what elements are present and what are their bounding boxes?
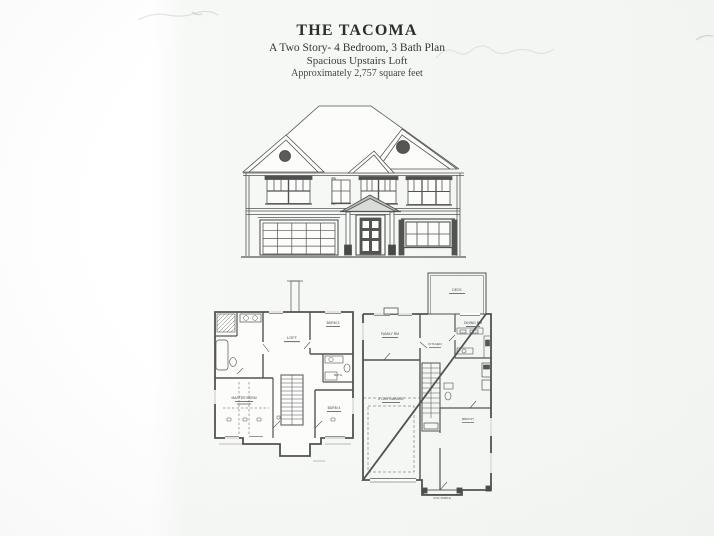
window-upper-right: [406, 177, 452, 206]
plan-area: Approximately 2,757 square feet: [0, 68, 714, 79]
room-label-kitchen: KITCHEN: [428, 342, 441, 346]
room-label-loft: LOFT: [287, 335, 298, 340]
scanned-flyer-page: THE TACOMA A Two Story- 4 Bedroom, 3 Bat…: [0, 0, 714, 536]
window-upper-center-small: [331, 178, 351, 204]
room-label-garage: 2 CAR GARAGE: [378, 397, 404, 401]
garage-door: [258, 218, 340, 256]
plan-title: THE TACOMA: [0, 22, 714, 40]
room-label-deck: DECK: [452, 288, 462, 292]
plan-tagline: Spacious Upstairs Loft: [0, 55, 714, 67]
room-label-master: MASTER BDRM: [231, 396, 256, 400]
room-label-bath: BATH: [334, 373, 342, 377]
room-label-brkfst: BRKFST: [462, 417, 474, 421]
room-label-porch: COV. PORCH: [433, 496, 450, 500]
window-lower-right: [399, 219, 457, 255]
first-floor-plan: DECK FAMILY RM DINING RM KITCHEN 2 CAR G…: [360, 268, 497, 500]
front-door: [356, 215, 385, 255]
room-label-bdrm3: BDRM 3: [327, 321, 340, 325]
plan-subtitle: A Two Story- 4 Bedroom, 3 Bath Plan: [0, 42, 714, 54]
room-label-family: FAMILY RM: [381, 332, 399, 336]
window-upper-left: [265, 176, 312, 204]
second-floor-plan: LOFT BDRM 3 MASTER BDRM BDRM 4 BATH: [213, 278, 356, 472]
room-label-bdrm4: BDRM 4: [328, 406, 341, 410]
title-block: THE TACOMA A Two Story- 4 Bedroom, 3 Bat…: [0, 22, 714, 79]
room-label-dining: DINING RM: [464, 321, 482, 325]
front-elevation-drawing: [238, 98, 470, 264]
